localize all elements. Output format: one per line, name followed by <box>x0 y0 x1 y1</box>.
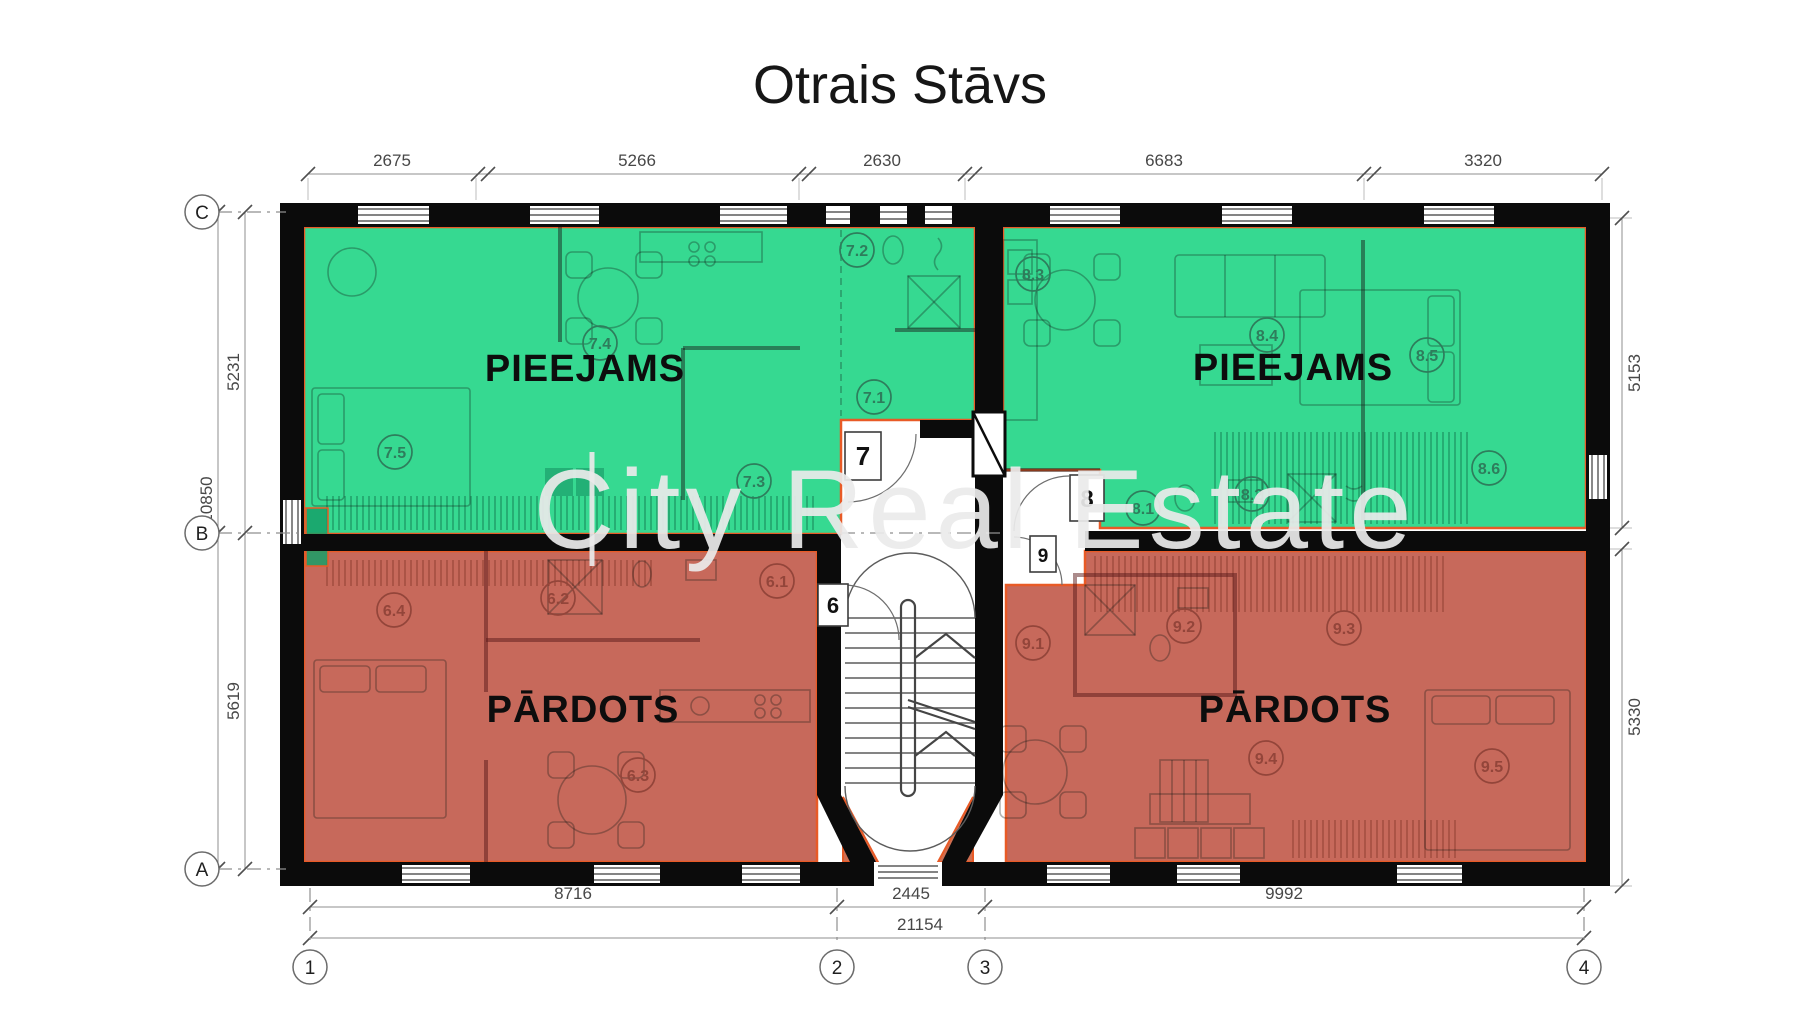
svg-text:8.6: 8.6 <box>1478 461 1500 478</box>
svg-text:6: 6 <box>827 593 839 618</box>
svg-text:1: 1 <box>305 958 316 979</box>
svg-text:7.1: 7.1 <box>863 390 885 407</box>
svg-text:9.2: 9.2 <box>1173 619 1195 636</box>
svg-text:2675: 2675 <box>373 151 411 170</box>
grid-bubble-col-2: 2 <box>820 950 854 984</box>
stair-arrow <box>915 634 975 658</box>
status-unit-7: PIEEJAMS <box>485 348 685 390</box>
svg-text:3: 3 <box>980 958 991 979</box>
svg-text:8.4: 8.4 <box>1256 328 1278 345</box>
status-unit-8: PIEEJAMS <box>1193 347 1393 389</box>
vestibule-stub <box>920 420 975 438</box>
svg-text:3320: 3320 <box>1464 151 1502 170</box>
stair-wall-left <box>817 534 841 795</box>
svg-text:4: 4 <box>1579 958 1590 979</box>
svg-text:6.3: 6.3 <box>627 768 649 785</box>
grid-bubble-col-1: 1 <box>293 950 327 984</box>
svg-text:B: B <box>196 524 209 545</box>
svg-text:5266: 5266 <box>618 151 656 170</box>
svg-text:8.5: 8.5 <box>1416 348 1438 365</box>
svg-text:8.3: 8.3 <box>1022 267 1044 284</box>
svg-text:9.1: 9.1 <box>1022 636 1044 653</box>
svg-text:6683: 6683 <box>1145 151 1183 170</box>
dimensions-bottom: 8716 2445 9992 21154 <box>303 884 1591 945</box>
floorplan-page: Otrais Stāvs <box>0 0 1800 1013</box>
svg-text:6.2: 6.2 <box>547 591 569 608</box>
svg-text:6.1: 6.1 <box>766 574 788 591</box>
watermark: City Real Estate <box>534 447 1417 572</box>
grid-bubble-col-3: 3 <box>968 950 1002 984</box>
watermark-text: City Real Estate <box>534 447 1417 572</box>
svg-text:5619: 5619 <box>224 682 243 720</box>
svg-text:2: 2 <box>832 958 843 979</box>
floorplan-canvas: Otrais Stāvs <box>0 0 1800 1013</box>
svg-text:7.2: 7.2 <box>846 243 868 260</box>
grid-bubble-row-c: C <box>185 195 219 229</box>
svg-text:2445: 2445 <box>892 884 930 903</box>
stair-break-line <box>908 700 975 729</box>
svg-text:7.5: 7.5 <box>384 445 406 462</box>
svg-text:9.3: 9.3 <box>1333 621 1355 638</box>
grid-bubble-col-4: 4 <box>1567 950 1601 984</box>
door-arc <box>844 585 899 640</box>
svg-text:21154: 21154 <box>897 915 943 934</box>
svg-text:2630: 2630 <box>863 151 901 170</box>
svg-text:A: A <box>196 860 209 881</box>
svg-text:5231: 5231 <box>224 353 243 391</box>
svg-text:9.5: 9.5 <box>1481 759 1503 776</box>
status-unit-6: PĀRDOTS <box>487 689 680 731</box>
svg-text:9.4: 9.4 <box>1255 751 1277 768</box>
svg-text:5330: 5330 <box>1625 698 1644 736</box>
svg-text:9992: 9992 <box>1265 884 1303 903</box>
dimensions-top: 2675 5266 2630 6683 3320 <box>301 151 1609 200</box>
stair-newel <box>901 600 915 796</box>
svg-text:6.4: 6.4 <box>383 603 405 620</box>
entrance-steps <box>874 862 942 886</box>
status-unit-9: PĀRDOTS <box>1199 689 1392 731</box>
svg-text:8716: 8716 <box>554 884 592 903</box>
svg-text:C: C <box>195 203 209 224</box>
page-title: Otrais Stāvs <box>753 55 1047 115</box>
dimensions-right: 5153 5330 <box>1610 211 1644 893</box>
grid-bubble-row-b: B <box>185 516 219 550</box>
grid-bubble-row-a: A <box>185 852 219 886</box>
svg-text:5153: 5153 <box>1625 354 1644 392</box>
